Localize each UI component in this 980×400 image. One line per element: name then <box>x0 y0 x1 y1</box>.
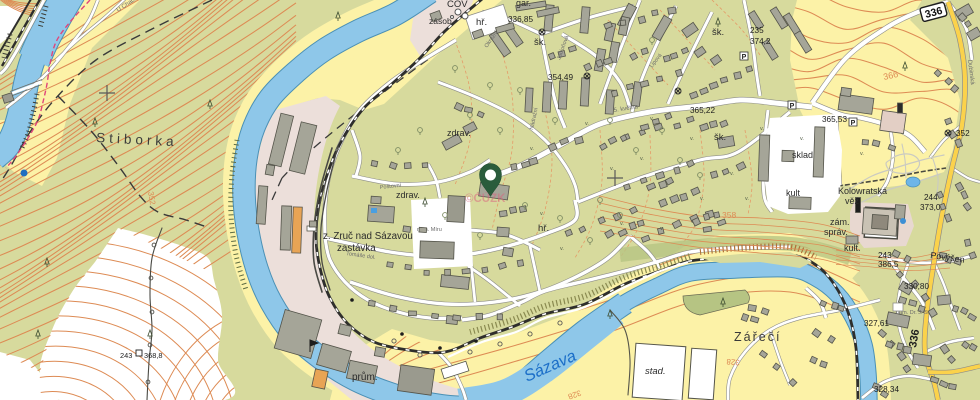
svg-text:v.: v. <box>560 246 564 252</box>
svg-text:243: 243 <box>120 351 132 360</box>
svg-text:P: P <box>742 54 747 61</box>
svg-text:v.: v. <box>620 221 624 227</box>
svg-text:243: 243 <box>878 251 892 260</box>
svg-text:v.: v. <box>800 136 804 142</box>
svg-text:v.: v. <box>690 136 694 142</box>
svg-text:šk.: šk. <box>712 27 724 38</box>
svg-text:v.: v. <box>730 171 734 177</box>
svg-text:zásob.: zásob. <box>429 16 454 26</box>
svg-text:358: 358 <box>722 210 736 220</box>
svg-text:330,80: 330,80 <box>904 282 929 291</box>
svg-text:365,53: 365,53 <box>822 115 847 124</box>
svg-text:stad.: stad. <box>645 366 666 377</box>
svg-text:336,85: 336,85 <box>508 15 533 24</box>
svg-text:244: 244 <box>924 193 938 202</box>
svg-text:354,49: 354,49 <box>548 73 573 82</box>
svg-text:352: 352 <box>956 129 970 138</box>
svg-text:zdrav.: zdrav. <box>396 190 420 200</box>
svg-text:hř.: hř. <box>538 223 549 234</box>
svg-text:gar.: gar. <box>516 0 531 8</box>
svg-text:v.: v. <box>760 126 764 132</box>
svg-text:v.: v. <box>585 121 589 127</box>
svg-text:P: P <box>851 120 856 127</box>
svg-text:386,5: 386,5 <box>878 260 899 269</box>
svg-text:Kolowratská: Kolowratská <box>838 186 887 196</box>
svg-text:©ČÚZK: ©ČÚZK <box>465 192 506 205</box>
svg-text:235: 235 <box>750 26 764 35</box>
svg-text:373,0: 373,0 <box>920 203 941 212</box>
svg-text:prům.: prům. <box>352 371 378 383</box>
svg-text:v.: v. <box>660 226 664 232</box>
svg-text:šk.: šk. <box>534 37 546 48</box>
svg-text:v.: v. <box>610 166 614 172</box>
svg-text:365,22: 365,22 <box>690 106 715 115</box>
svg-text:327,61: 327,61 <box>864 319 889 328</box>
svg-text:ČOV: ČOV <box>447 0 468 10</box>
svg-text:zám.: zám. <box>830 217 850 227</box>
svg-text:368,8: 368,8 <box>144 351 163 360</box>
svg-text:v.: v. <box>700 196 704 202</box>
svg-text:hř.: hř. <box>476 17 487 28</box>
svg-text:věž: věž <box>845 196 860 206</box>
svg-text:328,34: 328,34 <box>874 385 899 394</box>
svg-text:v.: v. <box>530 146 534 152</box>
svg-text:v.: v. <box>640 156 644 162</box>
svg-text:zdrav.: zdrav. <box>447 128 471 138</box>
svg-text:sklad: sklad <box>792 150 813 160</box>
svg-text:šk.: šk. <box>714 132 726 143</box>
svg-text:P: P <box>790 103 795 110</box>
svg-text:Zářečí: Zářečí <box>734 330 781 344</box>
svg-text:kult.: kult. <box>844 243 861 253</box>
svg-text:v.: v. <box>540 211 544 217</box>
svg-text:374,2: 374,2 <box>750 37 771 46</box>
svg-text:v.: v. <box>860 151 864 157</box>
svg-text:328: 328 <box>726 357 741 367</box>
svg-text:v.: v. <box>745 196 749 202</box>
svg-text:správ.: správ. <box>824 227 848 237</box>
svg-text:v.: v. <box>650 116 654 122</box>
svg-text:z. Zruč nad Sázavou: z. Zruč nad Sázavou <box>323 231 413 242</box>
svg-text:kult: kult <box>786 188 801 198</box>
